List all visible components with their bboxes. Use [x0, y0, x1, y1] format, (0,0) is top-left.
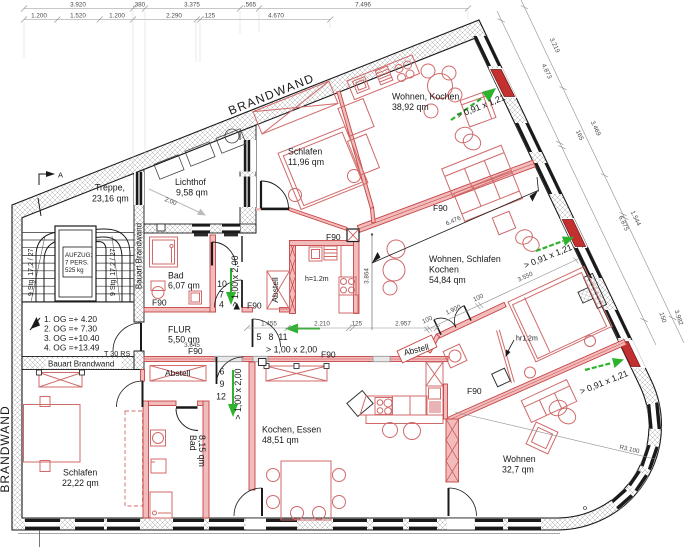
- svg-text:7: 7: [219, 290, 224, 300]
- svg-text:38,92 qm: 38,92 qm: [392, 102, 429, 112]
- svg-text:9,58 qm: 9,58 qm: [176, 188, 208, 198]
- svg-text:32,7 qm: 32,7 qm: [502, 465, 534, 475]
- svg-text:9 Stg. 17,2 / 27: 9 Stg. 17,2 / 27: [28, 248, 35, 296]
- svg-text:525 kg: 525 kg: [65, 267, 84, 274]
- svg-text:Schlafen: Schlafen: [288, 147, 322, 157]
- svg-text:> 0,91 x 1,21: > 0,91 x 1,21: [522, 242, 573, 270]
- svg-text:100: 100: [421, 315, 434, 326]
- svg-text:3. OG =+10.40: 3. OG =+10.40: [44, 333, 100, 343]
- svg-text:6.476: 6.476: [445, 215, 463, 228]
- svg-text:6: 6: [220, 367, 225, 377]
- svg-text:A: A: [58, 171, 63, 180]
- svg-text:12: 12: [216, 392, 226, 402]
- svg-text:.125: .125: [350, 321, 363, 328]
- svg-text:F90: F90: [433, 203, 448, 213]
- svg-text:11,96 qm: 11,96 qm: [288, 157, 324, 167]
- svg-text:3.864: 3.864: [364, 268, 371, 284]
- svg-text:3.982: 3.982: [673, 309, 685, 327]
- svg-text:100: 100: [472, 293, 485, 304]
- svg-text:1.200: 1.200: [31, 13, 47, 20]
- svg-text:4. OG =+13.49: 4. OG =+13.49: [44, 343, 100, 353]
- svg-text:Kochen, Essen: Kochen, Essen: [262, 425, 321, 435]
- svg-text:23,16 qm: 23,16 qm: [92, 194, 129, 204]
- svg-text:9: 9: [220, 379, 225, 389]
- svg-text:11: 11: [278, 332, 287, 342]
- svg-text:Bad: Bad: [168, 271, 184, 281]
- svg-text:3.219: 3.219: [548, 37, 561, 55]
- svg-text:Bauart Brandwand: Bauart Brandwand: [135, 223, 144, 289]
- svg-text:hr1.2m: hr1.2m: [516, 336, 538, 343]
- svg-text:7 PERS.: 7 PERS.: [65, 260, 89, 267]
- svg-text:h=1.2m: h=1.2m: [305, 276, 329, 283]
- svg-text:Treppe,: Treppe,: [95, 183, 125, 193]
- svg-text:F90: F90: [321, 350, 336, 360]
- svg-text:T 30 RS: T 30 RS: [104, 349, 130, 358]
- svg-text:2. OG =+ 7.30: 2. OG =+ 7.30: [44, 324, 97, 334]
- svg-text:> 1,00 x 2,00: > 1,00 x 2,00: [230, 255, 240, 306]
- svg-text:Lichthof: Lichthof: [175, 177, 206, 187]
- svg-text:9 Stg. 17,2 / 27: 9 Stg. 17,2 / 27: [110, 248, 117, 296]
- svg-text:22,22 qm: 22,22 qm: [62, 478, 99, 488]
- svg-text:2.957: 2.957: [395, 321, 411, 328]
- svg-text:10: 10: [217, 279, 227, 289]
- svg-text:8: 8: [269, 332, 274, 342]
- svg-text:3.920: 3.920: [70, 2, 86, 9]
- svg-text:F90: F90: [467, 386, 482, 396]
- svg-text:AUFZUG:: AUFZUG:: [65, 252, 92, 259]
- svg-text:3.469: 3.469: [589, 120, 602, 138]
- svg-text:1. OG =+ 4.20: 1. OG =+ 4.20: [44, 314, 97, 324]
- svg-text:5: 5: [257, 332, 262, 342]
- svg-text:5,50 qm: 5,50 qm: [168, 335, 200, 345]
- svg-text:1.455: 1.455: [261, 321, 277, 328]
- svg-text:1.200: 1.200: [109, 13, 125, 20]
- svg-text:2.210: 2.210: [314, 321, 330, 328]
- svg-text:48,51 qm: 48,51 qm: [262, 435, 299, 445]
- svg-text:BRANDWAND: BRANDWAND: [0, 405, 12, 492]
- svg-text:Abstell: Abstell: [165, 368, 191, 378]
- svg-text:54,84 qm: 54,84 qm: [429, 275, 466, 285]
- svg-text:F90: F90: [326, 232, 341, 242]
- svg-text:4.873: 4.873: [540, 63, 553, 81]
- svg-text:F90: F90: [247, 301, 262, 311]
- svg-text:F90: F90: [188, 346, 203, 356]
- svg-text:R3.100: R3.100: [619, 444, 641, 456]
- svg-text:2.290: 2.290: [166, 13, 182, 20]
- svg-text:1.520: 1.520: [70, 13, 86, 20]
- svg-text:150: 150: [657, 311, 667, 324]
- svg-text:3.375: 3.375: [184, 2, 200, 9]
- svg-text:4: 4: [219, 300, 224, 310]
- svg-text:,380: ,380: [133, 2, 146, 9]
- svg-text:> 0,91 x 1,21: > 0,91 x 1,21: [455, 92, 506, 120]
- svg-text:Wohnen, Schlafen: Wohnen, Schlafen: [429, 254, 501, 264]
- svg-text:Wohnen: Wohnen: [503, 454, 536, 464]
- svg-text:F90: F90: [152, 298, 167, 308]
- svg-text:Kochen: Kochen: [429, 265, 459, 275]
- svg-text:FLUR: FLUR: [168, 325, 191, 335]
- svg-text:Wohnen, Kochen: Wohnen, Kochen: [392, 92, 459, 102]
- svg-text:Bauart Brandwand: Bauart Brandwand: [48, 360, 114, 369]
- svg-text:Bad: Bad: [188, 435, 198, 451]
- svg-text:> 1,00 x 2,00: > 1,00 x 2,00: [266, 345, 317, 355]
- svg-text:> 1,00 x 2,00: > 1,00 x 2,00: [233, 368, 243, 419]
- svg-text:> 0,91 x 1,21: > 0,91 x 1,21: [578, 368, 629, 396]
- svg-text:3.550: 3.550: [517, 270, 535, 283]
- svg-text:.125: .125: [203, 13, 216, 20]
- svg-text:6,07 qm: 6,07 qm: [168, 281, 200, 291]
- svg-text:1.900: 1.900: [445, 303, 463, 316]
- svg-text:8,15 qm: 8,15 qm: [197, 435, 207, 467]
- svg-text:4.670: 4.670: [268, 13, 284, 20]
- svg-text:Schlafen: Schlafen: [63, 468, 97, 478]
- svg-text:,565: ,565: [244, 2, 257, 9]
- svg-text:1.544: 1.544: [629, 210, 642, 228]
- svg-text:2.00: 2.00: [164, 196, 178, 207]
- svg-text:Abstell: Abstell: [270, 277, 280, 303]
- svg-text:7.496: 7.496: [355, 2, 371, 9]
